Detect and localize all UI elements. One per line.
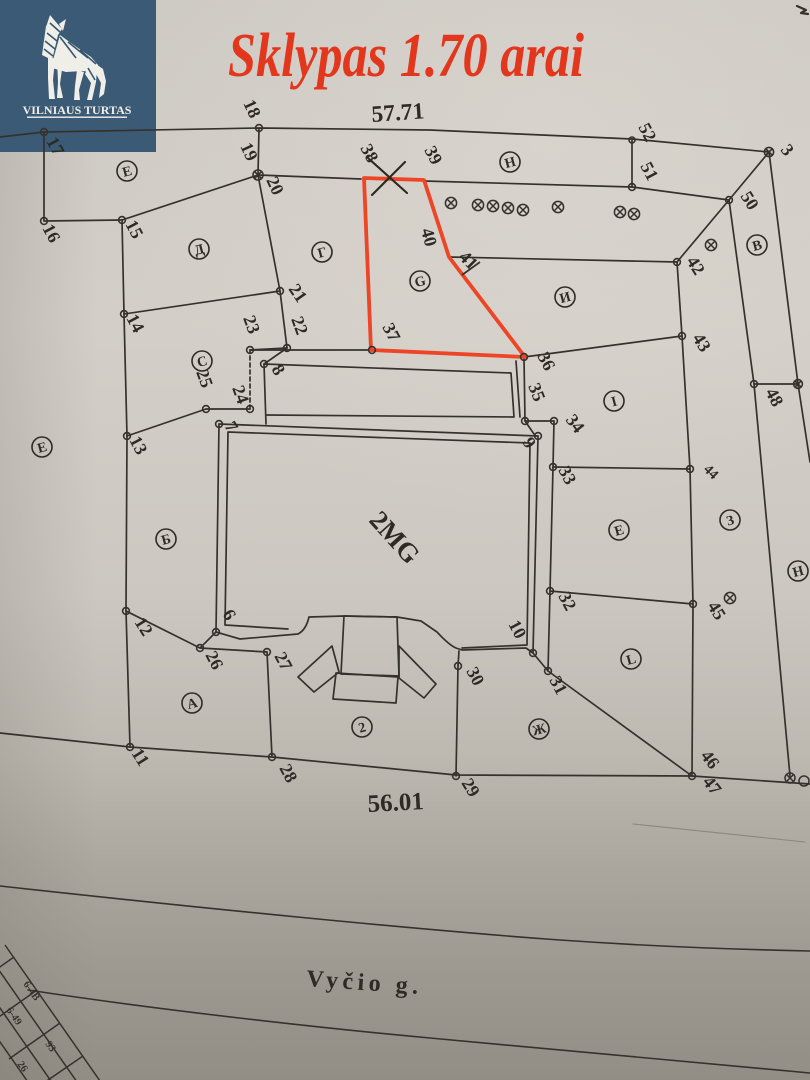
svg-text:57.71: 57.71 [371,98,426,128]
svg-text:56.01: 56.01 [367,788,425,818]
svg-text:VILNIAUS TURTAS: VILNIAUS TURTAS [23,103,132,117]
svg-text:Sklypas 1.70 arai: Sklypas 1.70 arai [228,22,584,90]
